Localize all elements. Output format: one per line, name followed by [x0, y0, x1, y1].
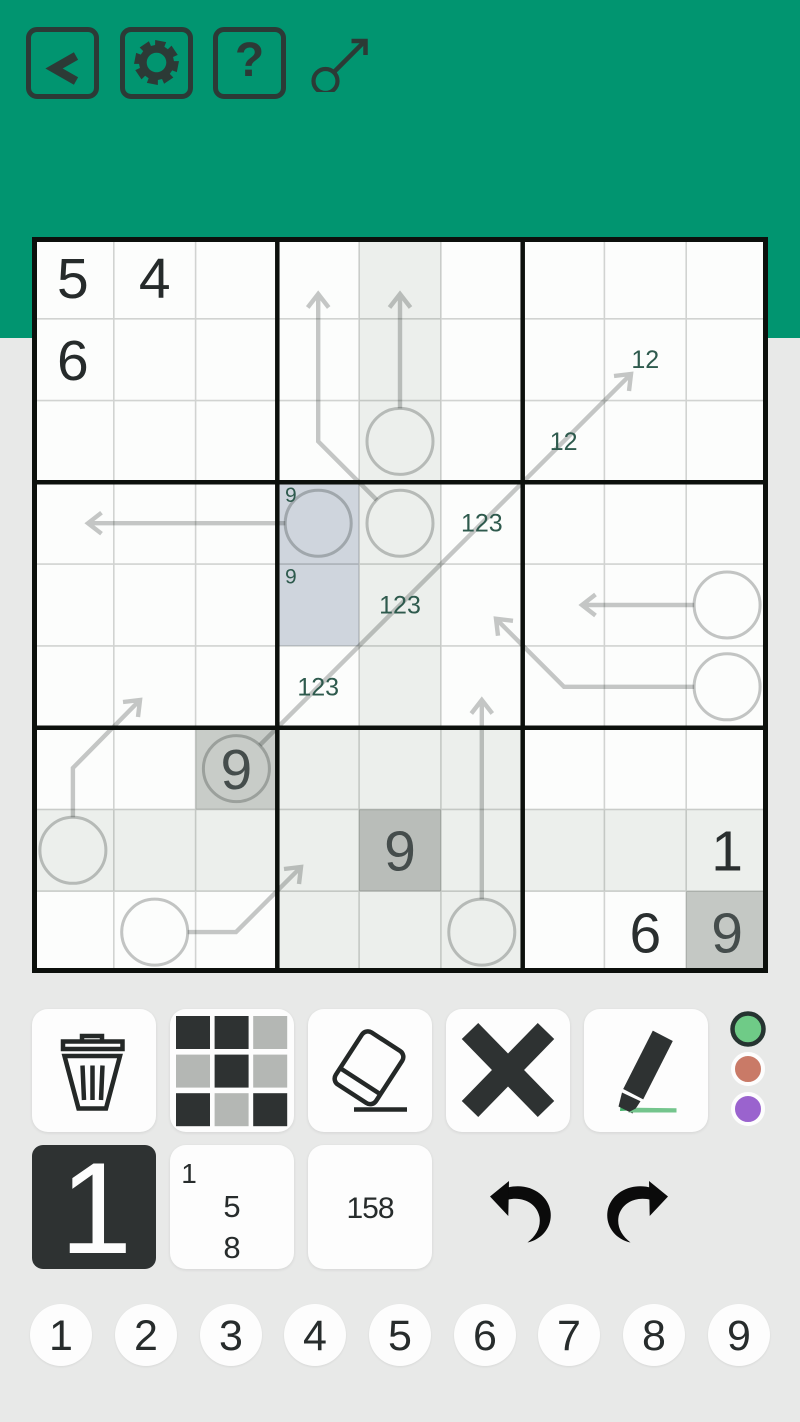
- svg-text:12: 12: [550, 428, 578, 456]
- svg-text:123: 123: [461, 510, 503, 538]
- svg-text:6: 6: [57, 329, 89, 393]
- svg-text:5: 5: [57, 247, 89, 311]
- svg-text:9: 9: [384, 820, 416, 884]
- svg-text:6: 6: [629, 901, 661, 965]
- svg-text:9: 9: [285, 566, 297, 589]
- svg-text:9: 9: [221, 738, 253, 802]
- svg-text:1: 1: [711, 820, 743, 884]
- svg-text:9: 9: [285, 484, 297, 507]
- svg-text:123: 123: [297, 673, 339, 701]
- svg-text:1: 1: [181, 1158, 197, 1189]
- svg-text:9: 9: [711, 901, 743, 965]
- svg-text:4: 4: [139, 247, 171, 311]
- svg-text:123: 123: [379, 592, 421, 620]
- svg-text:1: 1: [60, 1145, 132, 1269]
- svg-text:5: 5: [223, 1189, 240, 1224]
- svg-text:12: 12: [631, 346, 659, 374]
- svg-text:8: 8: [223, 1230, 240, 1265]
